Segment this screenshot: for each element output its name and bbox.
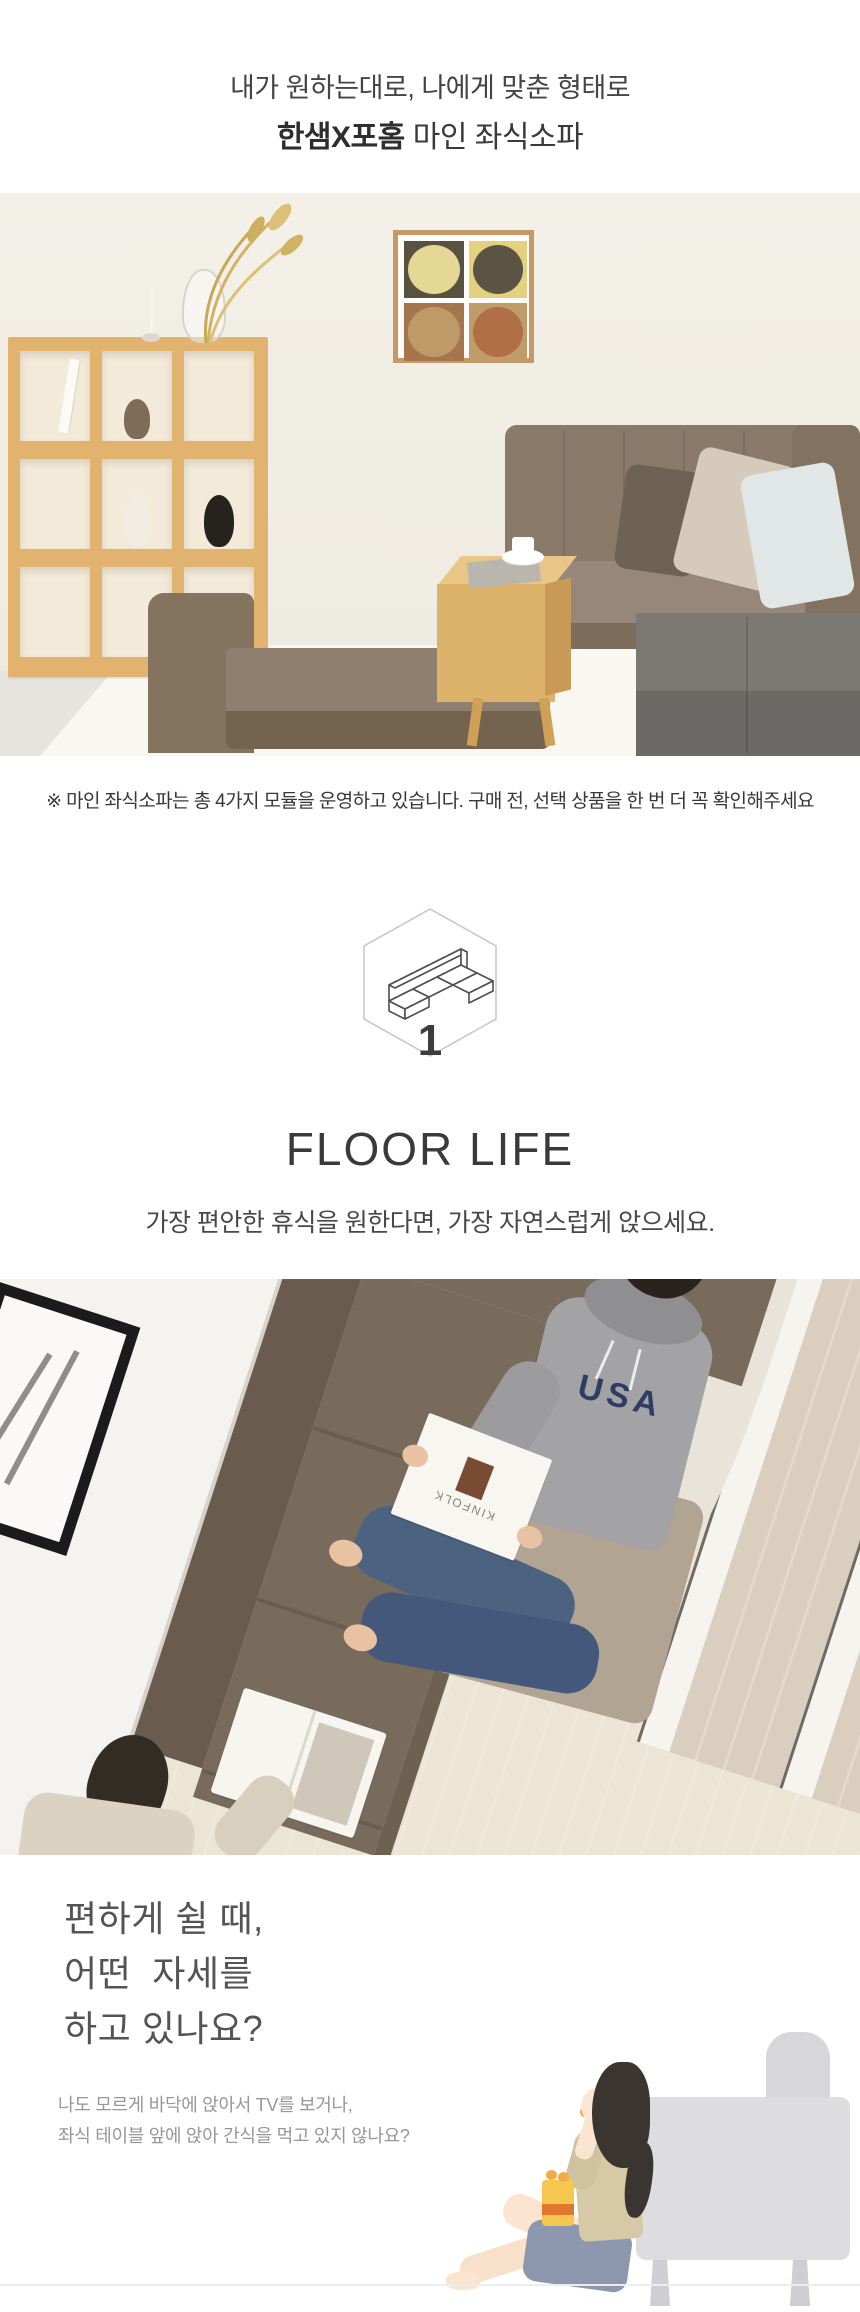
wall-art-frame — [393, 230, 534, 363]
gray-module-front — [636, 691, 860, 756]
snack-bag-band — [542, 2204, 574, 2215]
white-vase — [126, 493, 148, 547]
dried-grass-decor — [150, 193, 320, 353]
woman-foot — [446, 2272, 480, 2290]
coffee-table-side — [545, 578, 571, 696]
module-notice: ※ 마인 좌식소파는 총 4가지 모듈을 운영하고 있습니다. 구매 전, 선택… — [0, 786, 860, 813]
module-number: 1 — [418, 1016, 442, 1063]
chip-in-bag — [546, 2170, 557, 2180]
description-line-1: 나도 모르게 바닥에 앉아서 TV를 보거나, — [58, 2090, 353, 2121]
sofa-seam — [563, 431, 565, 571]
page: 내가 원하는대로, 나에게 맞춘 형태로 한샘X포홈마인 좌식소파 — [0, 0, 860, 2312]
chip-in-bag — [558, 2172, 569, 2182]
art-cell — [404, 303, 464, 361]
floor-life-subtitle: 가장 편안한 휴식을 원한다면, 가장 자연스럽게 앉으세요. — [0, 1203, 860, 1239]
description-line-2: 좌식 테이블 앞에 앉아 간식을 먹고 있지 않나요? — [58, 2121, 410, 2152]
art-cell — [469, 303, 527, 361]
illustration-sofa-body — [636, 2097, 850, 2260]
rotated-scene: USA KINFOLK — [0, 1279, 860, 1855]
coffee-table-front — [437, 584, 555, 702]
question-line-2: 어떤 자세를 — [64, 1947, 253, 2000]
illustration-sofa-leg — [650, 2260, 670, 2306]
book — [58, 359, 79, 434]
magazine-cover-image — [455, 1457, 494, 1501]
brown-vase — [124, 399, 150, 439]
shelf-cubby — [184, 459, 254, 549]
shelf-cubby — [20, 459, 90, 549]
floor-life-title: FLOOR LIFE — [0, 1122, 860, 1176]
shelf-cubby — [102, 351, 172, 441]
art-cell — [404, 241, 464, 298]
product-tagline: 내가 원하는대로, 나에게 맞춘 형태로 — [0, 66, 860, 105]
product-name: 마인 좌식소파 — [413, 121, 583, 154]
hero-photo — [0, 193, 860, 756]
art-circle — [473, 307, 523, 357]
question-line-3: 하고 있나요? — [64, 2002, 263, 2055]
sitting-woman-illustration — [430, 2020, 860, 2312]
illustration-sofa-leg — [790, 2260, 810, 2306]
question-line-1: 편하게 쉴 때, — [64, 1892, 264, 1945]
snack-bag — [542, 2180, 574, 2226]
single-module-front — [226, 711, 550, 749]
black-bottle — [204, 495, 234, 547]
art-circle — [473, 245, 523, 294]
shelf-cubby — [184, 351, 254, 441]
brand-name: 한샘X포홈 — [277, 121, 405, 154]
floor-line — [0, 2284, 860, 2286]
page-header: 내가 원하는대로, 나에게 맞춘 형태로 한샘X포홈마인 좌식소파 — [0, 66, 860, 156]
coffee-cup — [512, 537, 534, 554]
module-1-badge: 1 — [355, 905, 505, 1063]
shelf-cubby — [20, 351, 90, 441]
gray-module-seam — [746, 617, 748, 753]
shelf-cubby — [20, 567, 90, 657]
gray-module-seat — [636, 613, 860, 695]
art-circle — [408, 307, 460, 357]
lifestyle-photo: USA KINFOLK — [0, 1279, 860, 1855]
product-title: 한샘X포홈마인 좌식소파 — [0, 112, 860, 156]
art-circle — [408, 245, 460, 294]
shelf-cubby — [102, 459, 172, 549]
art-cell — [469, 241, 527, 298]
